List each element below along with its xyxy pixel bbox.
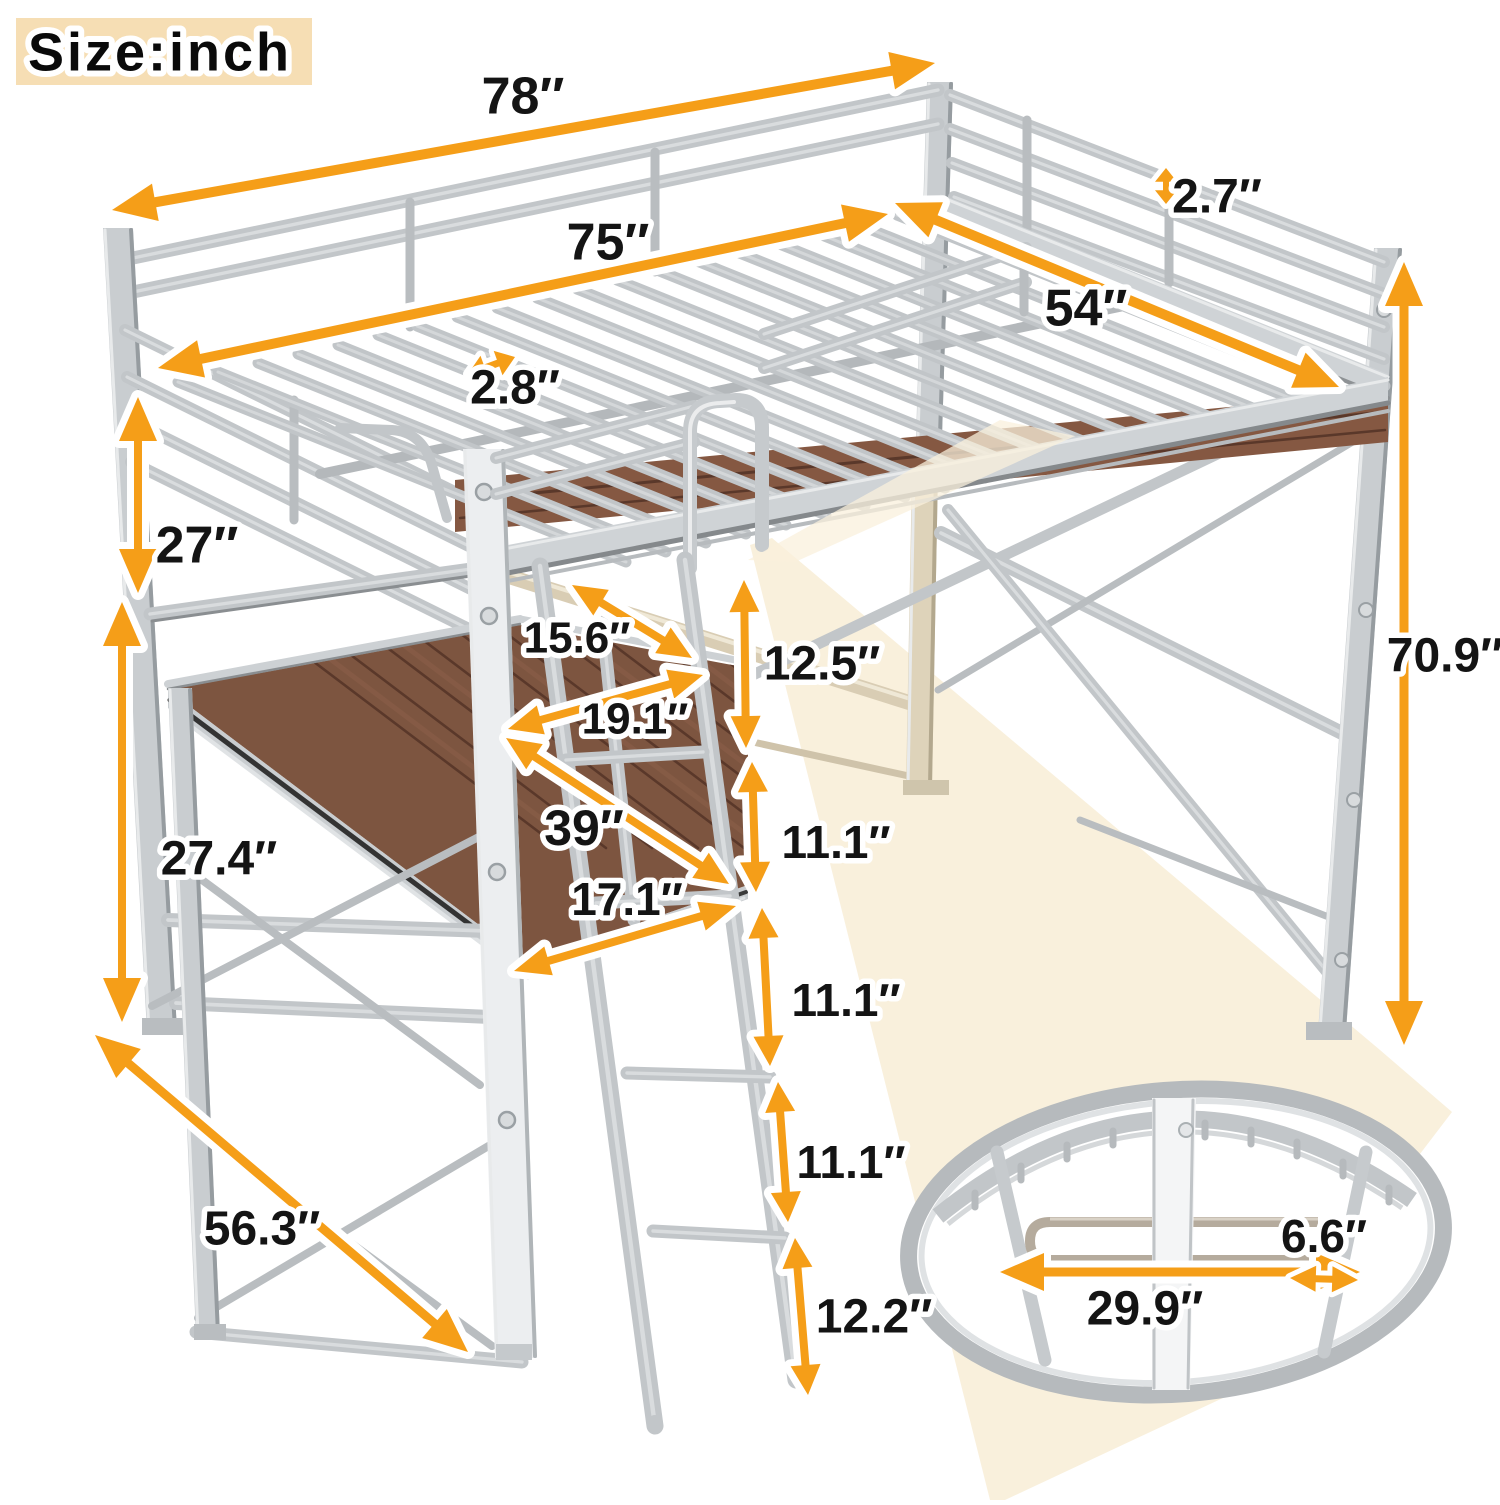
svg-text:27.4″: 27.4″ bbox=[161, 833, 277, 886]
svg-text:17.1″: 17.1″ bbox=[571, 873, 683, 925]
svg-text:12.5″: 12.5″ bbox=[764, 638, 880, 691]
svg-text:78″: 78″ bbox=[482, 68, 565, 126]
svg-text:54″: 54″ bbox=[1045, 280, 1128, 338]
svg-text:27″: 27″ bbox=[156, 517, 239, 575]
svg-text:11.1″: 11.1″ bbox=[796, 1136, 905, 1188]
svg-text:11.1″: 11.1″ bbox=[791, 974, 900, 1026]
svg-text:2.8″: 2.8″ bbox=[470, 362, 560, 415]
svg-text:Size:inch: Size:inch bbox=[28, 22, 292, 82]
svg-text:11.1″: 11.1″ bbox=[781, 816, 890, 868]
svg-text:70.9″: 70.9″ bbox=[1387, 630, 1500, 683]
svg-text:15.6″: 15.6″ bbox=[524, 614, 631, 663]
svg-text:56.3″: 56.3″ bbox=[204, 1203, 320, 1256]
svg-text:39″: 39″ bbox=[544, 800, 624, 856]
svg-text:6.6″: 6.6″ bbox=[1281, 1210, 1367, 1262]
svg-text:29.9″: 29.9″ bbox=[1087, 1283, 1203, 1336]
svg-text:2.7″: 2.7″ bbox=[1172, 171, 1262, 224]
svg-text:12.2″: 12.2″ bbox=[816, 1291, 932, 1344]
svg-text:19.1″: 19.1″ bbox=[582, 695, 689, 744]
svg-text:75″: 75″ bbox=[567, 214, 650, 272]
